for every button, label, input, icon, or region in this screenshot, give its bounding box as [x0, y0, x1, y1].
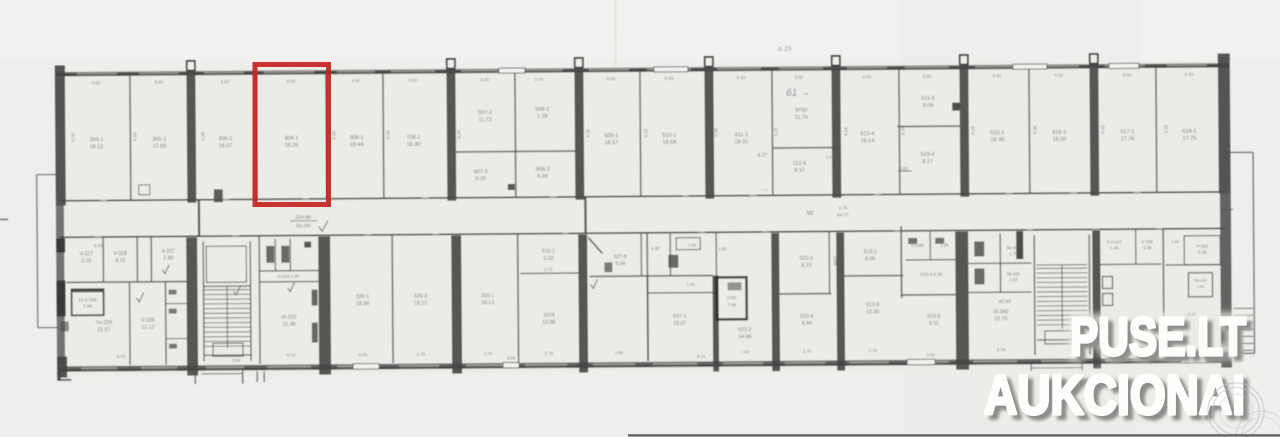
svg-text:13.30: 13.30: [866, 309, 879, 315]
svg-text:18.26: 18.26: [285, 143, 299, 149]
svg-text:2.7b: 2.7b: [544, 267, 553, 272]
svg-text:304-1: 304-1: [284, 136, 298, 142]
svg-text:PUSE.LT: PUSE.LT: [1070, 308, 1246, 367]
svg-text:507-2: 507-2: [478, 110, 492, 116]
svg-text:6.28: 6.28: [900, 126, 905, 135]
svg-text:513-8: 513-8: [866, 302, 879, 308]
svg-text:510-1: 510-1: [662, 133, 676, 139]
svg-text:2.76: 2.76: [535, 77, 544, 82]
svg-text:622-2: 622-2: [738, 327, 751, 333]
svg-text:18.12: 18.12: [414, 301, 427, 307]
svg-text:316-1: 316-1: [481, 293, 494, 299]
svg-text:515-1: 515-1: [990, 130, 1004, 136]
svg-text:2.76: 2.76: [484, 351, 493, 356]
svg-text:4-7b: 4-7b: [838, 205, 848, 210]
svg-text:6.00: 6.00: [1055, 73, 1064, 78]
svg-text:509-1: 509-1: [604, 133, 618, 139]
svg-text:7b-240: 7b-240: [1194, 278, 1207, 283]
svg-text:511-6: 511-6: [921, 96, 935, 102]
svg-text:6.28: 6.28: [1100, 125, 1105, 134]
svg-text:6.28: 6.28: [331, 131, 336, 140]
svg-text:508-2: 508-2: [535, 107, 549, 113]
svg-text:6.29: 6.29: [94, 243, 103, 248]
svg-text:516-1: 516-1: [1052, 130, 1066, 136]
svg-text:5a-161: 5a-161: [1007, 271, 1021, 276]
svg-text:320-1: 320-1: [356, 294, 369, 300]
svg-text:2.75: 2.75: [545, 351, 554, 356]
svg-text:517-1: 517-1: [1120, 129, 1134, 135]
svg-text:14 V-358: 14 V-358: [78, 297, 97, 302]
svg-text:6.28: 6.28: [713, 128, 718, 137]
svg-text:18.30: 18.30: [407, 142, 421, 148]
svg-text:49.44: 49.44: [998, 299, 1011, 305]
svg-text:6.00: 6.00: [607, 76, 616, 81]
svg-text:18.31: 18.31: [735, 139, 749, 145]
svg-text:1.70: 1.70: [1009, 251, 1018, 256]
svg-text:6.00: 6.00: [1123, 72, 1132, 77]
svg-text:6.00: 6.00: [993, 73, 1002, 78]
svg-text:507-3: 507-3: [474, 169, 488, 175]
svg-text:18.50: 18.50: [1053, 137, 1067, 143]
svg-text:2.90: 2.90: [163, 256, 173, 262]
svg-text:V-319 1.29: V-319 1.29: [278, 274, 300, 279]
svg-text:8.70: 8.70: [117, 354, 126, 359]
svg-text:11.76: 11.76: [795, 115, 808, 121]
svg-text:508-3: 508-3: [536, 167, 550, 173]
svg-text:18.57: 18.57: [605, 140, 619, 146]
svg-text:6.00: 6.00: [923, 74, 932, 79]
svg-text:6.00: 6.00: [155, 80, 164, 85]
svg-text:τ,νⁿ: τ,νⁿ: [826, 155, 834, 161]
svg-text:12.12: 12.12: [141, 325, 154, 331]
svg-text:V-322: V-322: [1196, 244, 1208, 249]
svg-text:6.00: 6.00: [863, 74, 872, 79]
svg-text:22.97: 22.97: [97, 327, 110, 333]
svg-text:6.00: 6.00: [475, 176, 486, 182]
svg-text:18.07: 18.07: [219, 143, 233, 149]
svg-text:V: V: [267, 249, 270, 254]
svg-text:4.0°: 4.0°: [757, 153, 768, 159]
svg-text:9.00: 9.00: [359, 352, 368, 357]
svg-text:4.15: 4.15: [115, 258, 125, 264]
svg-text:8.17: 8.17: [922, 159, 933, 165]
svg-text:6.28: 6.28: [970, 126, 975, 135]
svg-text:8.74: 8.74: [287, 353, 296, 358]
svg-text:6.00: 6.00: [92, 80, 101, 85]
svg-text:523-4: 523-4: [800, 314, 813, 320]
svg-text:6.28: 6.28: [1163, 124, 1168, 133]
svg-text:304-1: 304-1: [89, 137, 103, 143]
svg-text:518-1: 518-1: [1182, 129, 1196, 135]
svg-text:6.00: 6.00: [737, 75, 746, 80]
svg-text:11.72: 11.72: [479, 117, 492, 123]
svg-text:V-327: V-327: [79, 251, 93, 257]
svg-text:VI-340: VI-340: [993, 309, 1008, 315]
svg-text:a.15: a.15: [778, 46, 792, 53]
svg-text:8.17: 8.17: [794, 168, 805, 174]
svg-text:697-1: 697-1: [673, 314, 686, 320]
svg-text:308-1: 308-1: [349, 135, 363, 141]
svg-text:1.28: 1.28: [537, 114, 548, 120]
svg-text:8.74: 8.74: [997, 347, 1006, 352]
svg-text:1.55: 1.55: [688, 243, 697, 248]
svg-text:319-1: 319-1: [542, 249, 555, 255]
svg-text:8.74: 8.74: [697, 354, 706, 359]
svg-text:10.07: 10.07: [673, 321, 686, 327]
svg-text:411-1: 411-1: [735, 132, 749, 138]
svg-text:12.88: 12.88: [542, 320, 555, 326]
svg-text:6.28: 6.28: [385, 130, 390, 139]
svg-text:18.12: 18.12: [90, 144, 104, 150]
svg-text:VI-348: VI-348: [911, 243, 924, 248]
svg-text:1.44: 1.44: [686, 282, 695, 287]
svg-text:519-6: 519-6: [927, 314, 940, 320]
svg-text:2.92: 2.92: [927, 352, 936, 357]
svg-text:18.94: 18.94: [356, 301, 369, 307]
svg-text:6.28: 6.28: [456, 130, 461, 139]
svg-text:3.94: 3.94: [232, 358, 241, 363]
svg-text:3.28: 3.28: [1198, 250, 1207, 255]
svg-text:522-4: 522-4: [800, 256, 813, 262]
svg-text:627-8: 627-8: [614, 254, 627, 260]
svg-text:6.00: 6.00: [287, 79, 296, 84]
svg-text:18.13: 18.13: [481, 300, 494, 306]
svg-text:6.00: 6.00: [899, 166, 908, 171]
svg-text:8.66: 8.66: [865, 256, 875, 262]
svg-text:2.75: 2.75: [803, 349, 812, 354]
svg-text:518-4: 518-4: [920, 152, 934, 158]
svg-text:6.34: 6.34: [615, 261, 625, 267]
svg-text:6.28: 6.28: [585, 129, 590, 138]
svg-text:17.76: 17.76: [1121, 136, 1135, 142]
svg-text:1.50: 1.50: [1009, 277, 1018, 282]
svg-text:9.44: 9.44: [802, 321, 812, 327]
svg-text:6.00: 6.00: [481, 77, 490, 82]
svg-text:8.23: 8.23: [801, 263, 811, 269]
svg-text:5a-160: 5a-160: [1007, 245, 1021, 250]
svg-text:W: W: [806, 208, 814, 217]
svg-text:84.77: 84.77: [837, 212, 849, 217]
svg-text:6.00: 6.00: [221, 79, 230, 84]
svg-text:8 V-147: 8 V-147: [1107, 239, 1123, 244]
svg-text:Yn-329: Yn-329: [95, 320, 112, 326]
svg-text:6.28: 6.28: [70, 133, 75, 142]
svg-text:7.08: 7.08: [727, 302, 736, 307]
svg-text:0.82: 0.82: [186, 241, 195, 246]
svg-text:6.28: 6.28: [132, 132, 137, 141]
svg-text:3.98: 3.98: [507, 355, 516, 360]
svg-text:1.81: 1.81: [1197, 284, 1206, 289]
svg-text:14.96: 14.96: [738, 334, 751, 340]
svg-text:6.28: 6.28: [843, 127, 848, 136]
svg-text:9.04: 9.04: [923, 103, 934, 109]
svg-text:6.00: 6.00: [352, 78, 361, 83]
svg-text:17.76: 17.76: [1183, 136, 1197, 142]
svg-text:519-1: 519-1: [864, 249, 877, 255]
svg-text:1.88: 1.88: [1171, 239, 1180, 244]
svg-text:6.28: 6.28: [773, 127, 778, 136]
svg-text:18.44: 18.44: [350, 142, 364, 148]
svg-text:18.38: 18.38: [991, 137, 1005, 143]
svg-text:1.40: 1.40: [1110, 245, 1119, 250]
svg-text:2.76: 2.76: [417, 352, 426, 357]
svg-text:6.00: 6.00: [665, 76, 674, 81]
svg-text:1.58: 1.58: [718, 246, 727, 251]
svg-text:306-1: 306-1: [218, 136, 232, 142]
svg-text:1.88: 1.88: [615, 350, 624, 355]
svg-text:708-1: 708-1: [406, 135, 420, 141]
svg-text:6.28: 6.28: [200, 132, 205, 141]
svg-text:6.28: 6.28: [643, 128, 648, 137]
svg-text:V-338: V-338: [141, 318, 155, 324]
svg-text:AUKCIONAI: AUKCIONAI: [984, 363, 1245, 426]
svg-text:1753: 1753: [727, 295, 737, 300]
svg-text:18.68: 18.68: [663, 140, 677, 146]
svg-text:3.33: 3.33: [543, 256, 553, 262]
svg-text:V-337: V-337: [161, 249, 175, 255]
svg-text:305-1: 305-1: [152, 137, 166, 143]
svg-text:112-6: 112-6: [793, 161, 807, 167]
svg-text:18.14: 18.14: [861, 138, 875, 144]
svg-text:88/15: 88/15: [832, 255, 837, 266]
svg-text:6.99: 6.99: [537, 174, 548, 180]
svg-text:1.49: 1.49: [1143, 245, 1152, 250]
svg-text:7.76: 7.76: [869, 348, 878, 353]
svg-text:V: V: [283, 249, 286, 254]
svg-text:22.73: 22.73: [994, 316, 1007, 322]
svg-text:513-4: 513-4: [860, 131, 874, 137]
svg-text:61 →: 61 →: [786, 88, 810, 99]
svg-text:7.62: 7.62: [741, 349, 750, 354]
svg-text:519-3 8.30: 519-3 8.30: [920, 272, 942, 277]
svg-text:VI-310: VI-310: [281, 315, 296, 321]
svg-text:6.00: 6.00: [795, 75, 804, 80]
svg-text:↔: ↔: [763, 187, 769, 193]
svg-text:6.00: 6.00: [409, 78, 418, 83]
svg-text:6.28: 6.28: [1032, 125, 1037, 134]
svg-text:1.94: 1.94: [83, 303, 92, 308]
svg-text:Nr-99: Nr-99: [296, 224, 311, 230]
svg-text:V-328: V-328: [113, 251, 127, 257]
svg-text:6.00: 6.00: [1185, 72, 1194, 77]
svg-text:10+9b: 10+9b: [295, 215, 312, 221]
svg-text:3.15: 3.15: [81, 258, 91, 264]
svg-text:320-3: 320-3: [414, 294, 427, 300]
svg-text:17.88: 17.88: [153, 144, 167, 150]
svg-text:1074: 1074: [543, 313, 555, 319]
svg-text:1.28: 1.28: [940, 243, 949, 248]
svg-text:12.38: 12.38: [282, 322, 295, 328]
svg-text:9750: 9750: [795, 108, 807, 114]
svg-text:V-159: V-159: [1141, 239, 1153, 244]
svg-text:4.32: 4.32: [651, 246, 660, 251]
svg-text:9.11: 9.11: [929, 321, 939, 327]
